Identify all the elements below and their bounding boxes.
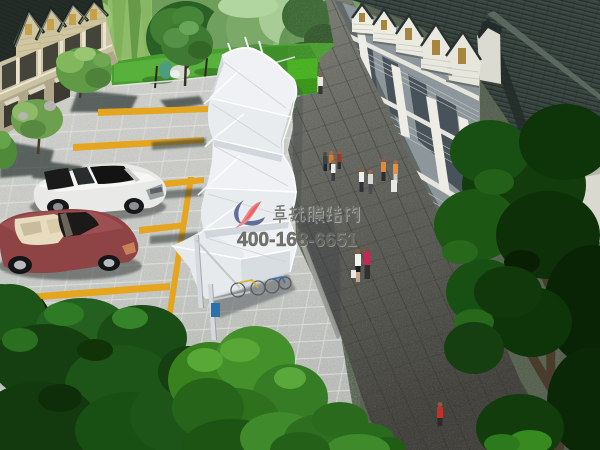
svg-text:400-168-6651: 400-168-6651 [237,229,357,251]
